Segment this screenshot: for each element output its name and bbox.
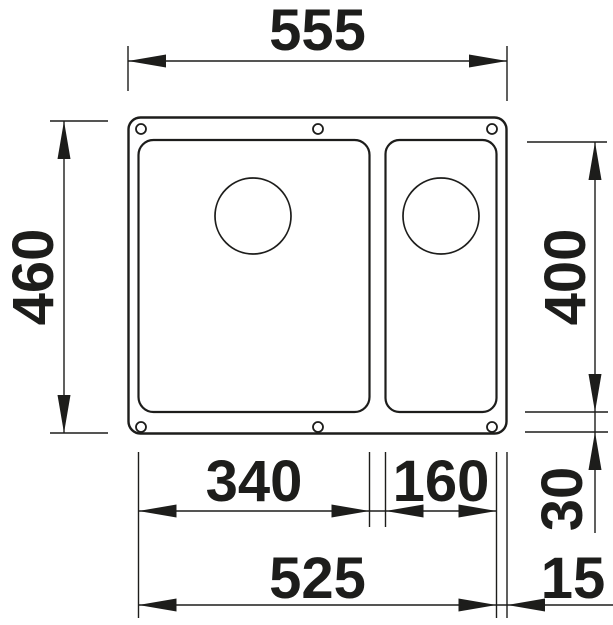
dimension-lines: [50, 46, 613, 618]
sink-plan: [129, 118, 507, 434]
arrow-main-bowl-right: [332, 505, 370, 518]
arrow-rim-offset-bottom: [589, 432, 602, 470]
arrow-overall-depth-top: [58, 121, 71, 159]
label-half-bowl-width: 160: [393, 449, 490, 514]
arrow-span-left: [139, 599, 177, 612]
arrow-overall-width-right: [469, 55, 507, 68]
arrow-overall-depth-bottom: [58, 395, 71, 433]
mounting-hole-bottom-right: [487, 422, 497, 432]
arrow-edge-offset-right: [507, 599, 545, 612]
label-rim-bottom-offset: 30: [530, 467, 595, 532]
mounting-hole-bottom-left: [136, 422, 146, 432]
arrow-main-bowl-left: [139, 505, 177, 518]
dimension-labels: 555 460 400 340 160 30 525 15: [1, 0, 605, 611]
label-bowl-depth: 400: [533, 229, 598, 326]
label-overall-depth: 460: [1, 229, 66, 326]
sink-outer-rim: [129, 118, 507, 434]
main-bowl-drain-hole: [215, 178, 291, 254]
arrow-bowl-depth-top: [589, 142, 602, 180]
label-overall-width: 555: [269, 0, 366, 63]
arrow-overall-width-left: [128, 55, 166, 68]
sink-technical-drawing: 555 460 400 340 160 30 525 15: [0, 0, 613, 625]
arrow-bowl-depth-bottom: [589, 374, 602, 412]
main-bowl: [139, 140, 370, 412]
label-rim-right-offset: 15: [541, 546, 606, 611]
half-bowl-drain-hole: [403, 178, 479, 254]
mounting-hole-top-left: [136, 124, 146, 134]
arrow-span-right: [459, 599, 497, 612]
mounting-hole-bottom-middle: [313, 422, 323, 432]
half-bowl: [386, 140, 497, 412]
drawing-canvas: 555 460 400 340 160 30 525 15: [0, 0, 613, 625]
mounting-holes: [136, 124, 497, 432]
label-bowls-span-width: 525: [269, 546, 366, 611]
mounting-hole-top-middle: [313, 124, 323, 134]
label-main-bowl-width: 340: [206, 449, 303, 514]
mounting-hole-top-right: [487, 124, 497, 134]
